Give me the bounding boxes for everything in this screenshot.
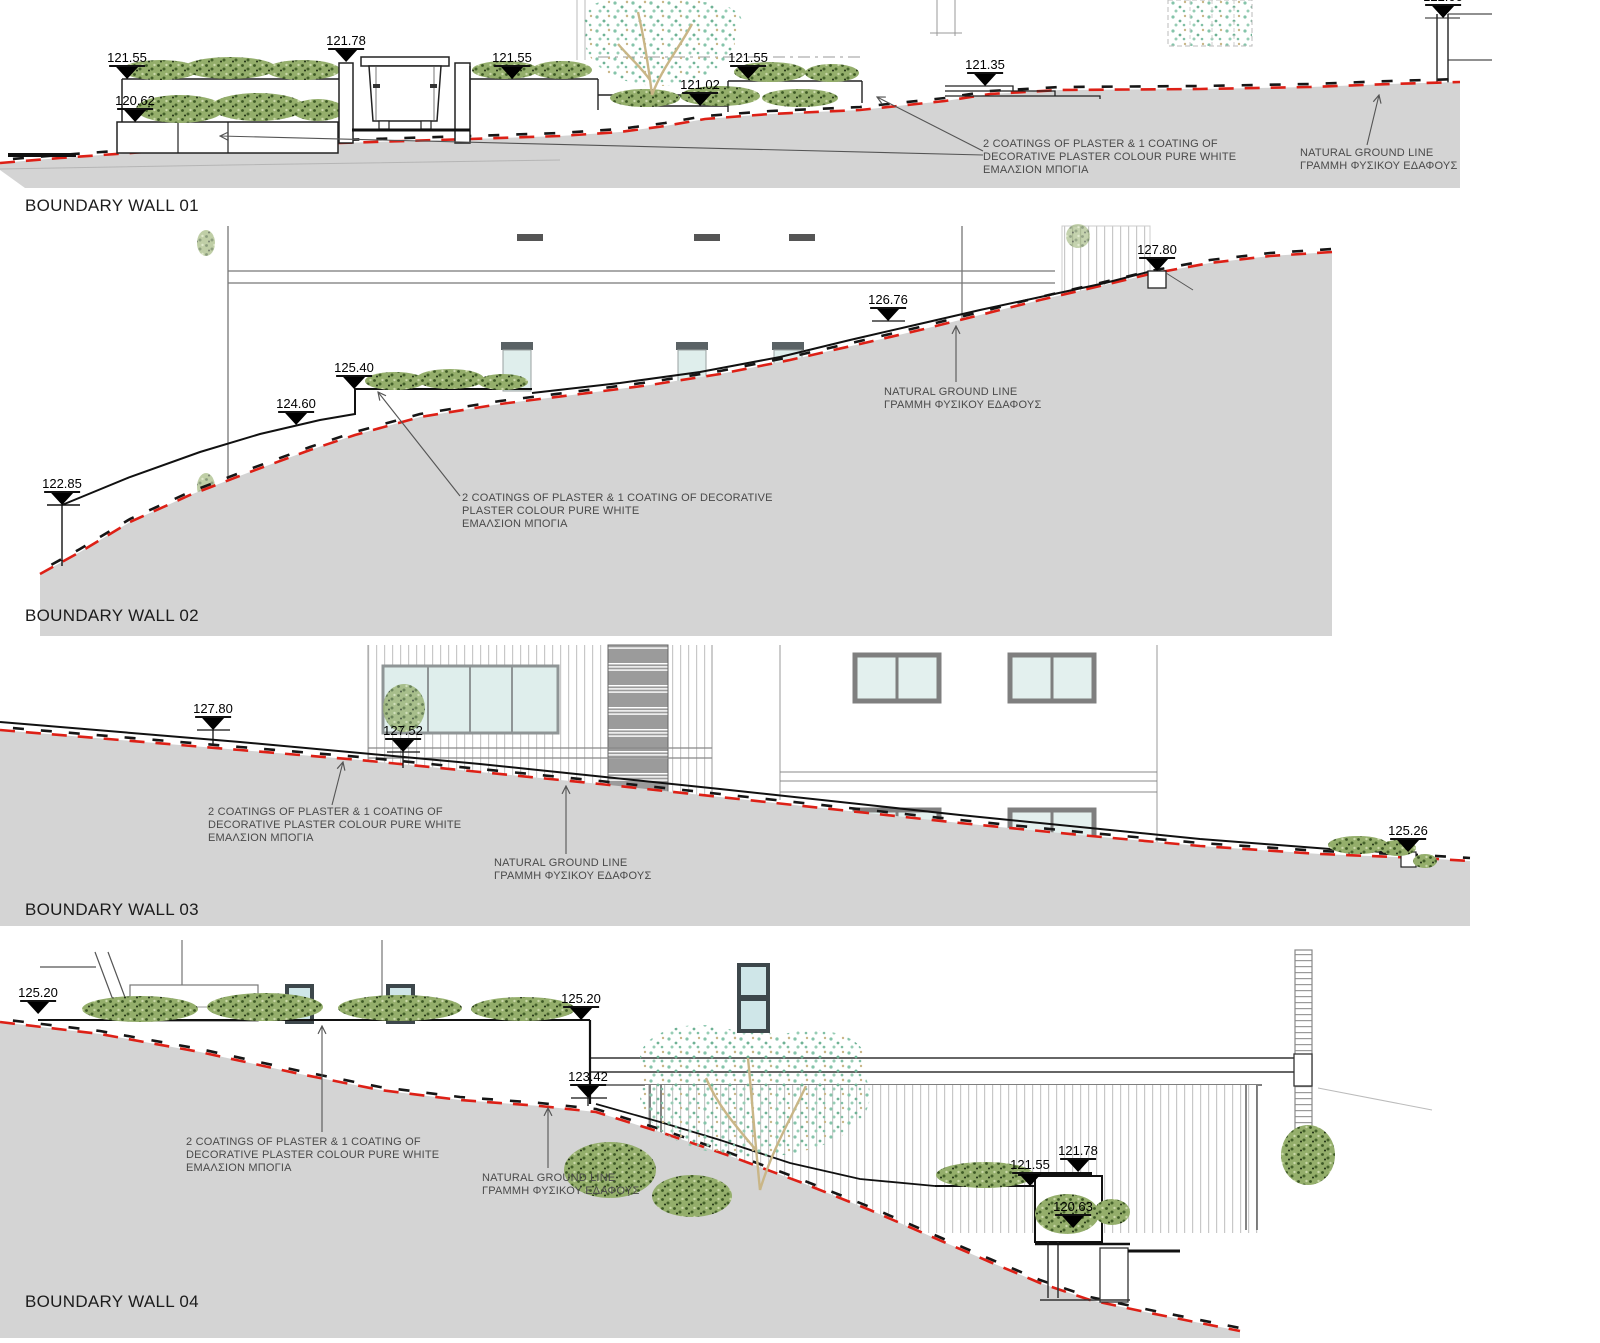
elevation-marker: 121.78 [326, 33, 366, 62]
marker-triangle-icon [285, 413, 307, 425]
marker-triangle-icon [689, 94, 711, 106]
corner-column [1295, 950, 1312, 1148]
natural-ground-annotation: NATURAL GROUND LINE ΓΡΑΜΜΗ ΦΥΣΙΚΟΥ ΕΔΑΦΟ… [494, 857, 651, 883]
ground-mass [40, 252, 1332, 636]
bw03-drawing [0, 645, 1470, 926]
elevation-marker: 125.40 [334, 360, 374, 389]
elevation-marker: 121.78 [1058, 1143, 1098, 1172]
plaster-annotation: 2 COATINGS OF PLASTER & 1 COATING OF DEC… [208, 806, 461, 845]
marker-triangle-icon [1432, 6, 1454, 18]
elevation-marker: 126.76 [868, 292, 908, 321]
elevation-marker: 120.62 [115, 93, 155, 122]
elevation-value: 125.26 [1388, 823, 1428, 838]
marker-triangle-icon [51, 493, 73, 505]
elevation-value: 120.63 [1053, 1199, 1093, 1214]
marker-triangle-icon [343, 377, 365, 389]
elevation-marker: 122.85 [42, 476, 82, 505]
elevation-value: 121.35 [965, 57, 1005, 72]
elevation-marker: 125.20 [18, 985, 58, 1014]
bw02-drawing [40, 224, 1332, 636]
marker-triangle-icon [877, 309, 899, 321]
elevation-value: 121.55 [492, 50, 532, 65]
elevation-marker: 125.20 [561, 991, 601, 1020]
plaster-annotation: 2 COATINGS OF PLASTER & 1 COATING OF DEC… [462, 492, 773, 531]
marker-triangle-icon [116, 67, 138, 79]
marker-triangle-icon [1062, 1216, 1084, 1228]
section-title-bw02: BOUNDARY WALL 02 [25, 606, 199, 626]
marker-triangle-icon [335, 50, 357, 62]
boundary-wall-sections-sheet: 121.55 121.78 120.62 121.55 121.02 121.5… [0, 0, 1600, 1343]
section-title-bw03: BOUNDARY WALL 03 [25, 900, 199, 920]
elevation-value: 122.85 [42, 476, 82, 491]
elevation-value: 121.78 [1058, 1143, 1098, 1158]
elevation-marker: 127.80 [1137, 242, 1177, 271]
marker-triangle-icon [124, 110, 146, 122]
waste-bin-enclosure [339, 57, 470, 143]
elevation-marker: 127.80 [193, 701, 233, 730]
elevation-value: 127.52 [383, 723, 423, 738]
elevation-value: 121.55 [728, 50, 768, 65]
marker-triangle-icon [27, 1002, 49, 1014]
elevation-value: 120.62 [115, 93, 155, 108]
elevation-value: 125.20 [561, 991, 601, 1006]
marker-triangle-icon [392, 740, 414, 752]
planter-bushes [122, 57, 344, 123]
elevation-value: 124.60 [276, 396, 316, 411]
elevation-value: 121.78 [326, 33, 366, 48]
elevation-marker: 120.63 [1053, 1199, 1093, 1228]
marker-triangle-icon [1019, 1174, 1041, 1186]
natural-ground-annotation: NATURAL GROUND LINE ΓΡΑΜΜΗ ΦΥΣΙΚΟΥ ΕΔΑΦΟ… [884, 386, 1041, 412]
elevation-marker: 122.00 [1423, 0, 1463, 18]
marker-triangle-icon [974, 74, 996, 86]
elevation-value: 125.40 [334, 360, 374, 375]
elevation-value: 127.80 [1137, 242, 1177, 257]
elevation-marker: 121.55 [1010, 1157, 1050, 1186]
bw01-drawing [0, 0, 1492, 188]
section-title-bw01: BOUNDARY WALL 01 [25, 196, 199, 216]
marker-triangle-icon [1067, 1160, 1089, 1172]
marker-triangle-icon [1397, 840, 1419, 852]
elevation-value: 127.80 [193, 701, 233, 716]
elevation-marker: 124.60 [276, 396, 316, 425]
wall-top-bushes [82, 993, 575, 1022]
background-shrub-box [1168, 0, 1252, 46]
elevation-marker: 127.52 [383, 723, 423, 752]
marker-triangle-icon [202, 718, 224, 730]
elevation-marker: 121.02 [680, 77, 720, 106]
natural-ground-annotation: NATURAL GROUND LINE ΓΡΑΜΜΗ ΦΥΣΙΚΟΥ ΕΔΑΦΟ… [482, 1172, 639, 1198]
louver-panel [608, 645, 668, 797]
plaster-annotation: 2 COATINGS OF PLASTER & 1 COATING OF DEC… [186, 1136, 439, 1175]
marker-triangle-icon [501, 67, 523, 79]
natural-ground-annotation: NATURAL GROUND LINE ΓΡΑΜΜΗ ΦΥΣΙΚΟΥ ΕΔΑΦΟ… [1300, 147, 1457, 173]
elevation-value: 123.42 [568, 1069, 608, 1084]
elevation-value: 126.76 [868, 292, 908, 307]
elevation-value: 121.55 [1010, 1157, 1050, 1172]
marker-triangle-icon [1146, 259, 1168, 271]
elevation-value: 125.20 [18, 985, 58, 1000]
elevation-marker: 121.55 [728, 50, 768, 79]
section-title-bw04: BOUNDARY WALL 04 [25, 1292, 199, 1312]
elevation-value: 121.55 [107, 50, 147, 65]
marker-triangle-icon [577, 1086, 599, 1098]
marker-triangle-icon [570, 1008, 592, 1020]
elevation-marker: 125.26 [1388, 823, 1428, 852]
right-wall-post [1437, 14, 1448, 85]
elevation-marker: 121.55 [492, 50, 532, 79]
elevation-marker: 121.55 [107, 50, 147, 79]
plaster-annotation: 2 COATINGS OF PLASTER & 1 COATING OF DEC… [983, 138, 1236, 177]
elevation-value: 121.02 [680, 77, 720, 92]
elevation-marker: 121.35 [965, 57, 1005, 86]
marker-triangle-icon [737, 67, 759, 79]
elevation-marker: 123.42 [568, 1069, 608, 1098]
